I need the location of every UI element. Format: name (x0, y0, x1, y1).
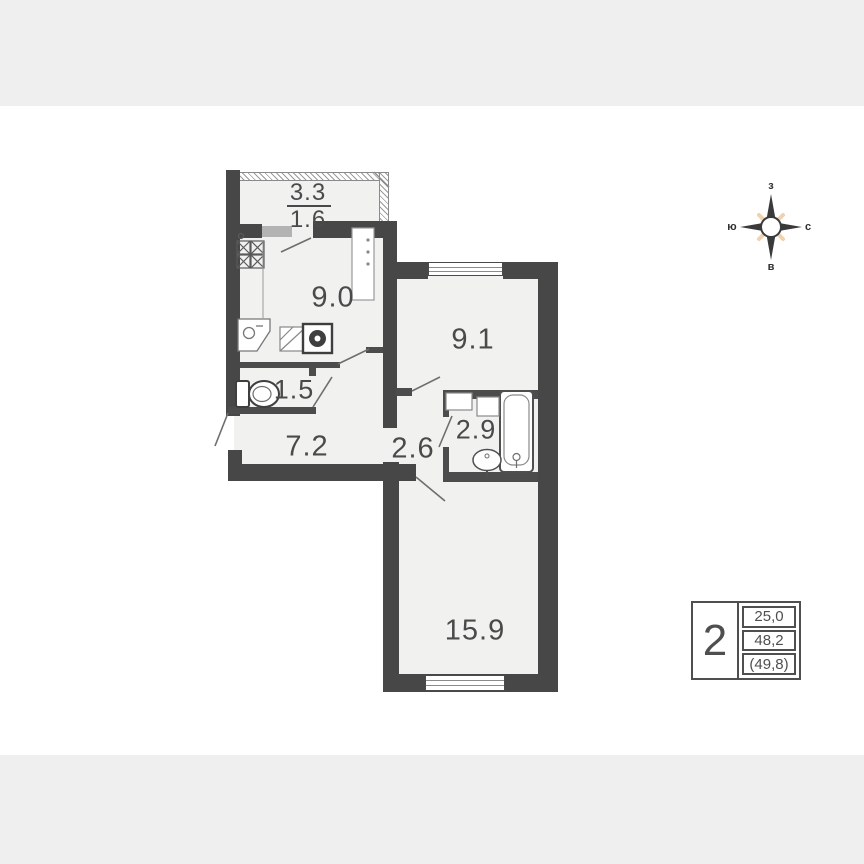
room-area-label-bathroom: 2.9 (456, 415, 497, 446)
window-sill (262, 226, 292, 237)
info-table: 2 25,0 48,2 (49,8) (691, 601, 801, 680)
wall (366, 347, 383, 353)
wall (226, 224, 262, 238)
wall (240, 362, 340, 368)
compass-label-left: ю (727, 221, 736, 233)
wall (443, 472, 538, 482)
living-room-floor (388, 468, 542, 680)
compass-rose (740, 194, 802, 260)
wall (397, 262, 428, 279)
wall (443, 390, 538, 399)
compass-ray (759, 215, 783, 239)
wall (383, 462, 399, 692)
wall (538, 262, 558, 692)
wall (443, 447, 449, 474)
info-table-areas: 25,0 48,2 (49,8) (739, 603, 799, 678)
wall (228, 407, 316, 414)
info-table-full-area: (49,8) (742, 653, 796, 675)
wall (383, 221, 397, 428)
balcony-area-full: 3.3 (290, 179, 326, 207)
entrance-door-swing (215, 413, 228, 446)
compass-label-top: з (768, 180, 773, 192)
wall (396, 388, 412, 396)
balcony-area-reduced: 1.6 (290, 206, 326, 234)
info-table-total-area: 48,2 (742, 630, 796, 652)
room-area-label-bedroom: 9.1 (451, 324, 494, 357)
compass-ray (759, 215, 783, 239)
wall (226, 170, 240, 416)
room-area-label-corridor: 2.6 (391, 433, 434, 466)
wall (443, 390, 449, 417)
room-area-label-living: 15.9 (445, 615, 505, 648)
info-table-rooms-count: 2 (693, 603, 739, 678)
compass-label-bottom: в (768, 261, 775, 273)
window (428, 262, 503, 276)
compass-center (761, 217, 781, 237)
info-table-living-area: 25,0 (742, 606, 796, 628)
room-area-label-hallway: 7.2 (285, 431, 328, 464)
compass-arms (740, 194, 802, 260)
window (425, 675, 505, 691)
compass-label-right: с (805, 221, 811, 233)
floor-plan: 9.0 9.1 1.5 7.2 2.6 2.9 15.9 3.3 1.6 з ю… (0, 0, 864, 864)
room-area-label-wc: 1.5 (274, 375, 315, 406)
room-area-label-kitchen: 9.0 (311, 282, 354, 315)
